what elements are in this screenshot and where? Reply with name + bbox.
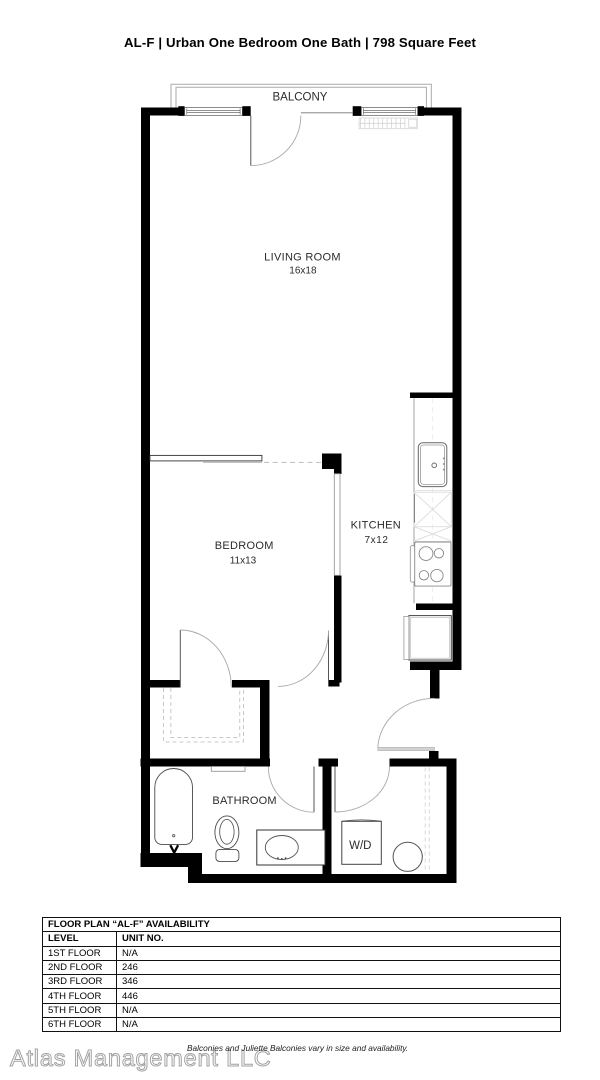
svg-text:KITCHEN: KITCHEN — [351, 520, 401, 532]
svg-text:11x13: 11x13 — [230, 555, 257, 566]
svg-text:7x12: 7x12 — [364, 535, 388, 546]
svg-text:BALCONY: BALCONY — [273, 91, 328, 103]
svg-text:BATHROOM: BATHROOM — [212, 795, 276, 807]
svg-text:LIVING ROOM: LIVING ROOM — [264, 252, 341, 264]
svg-text:16x18: 16x18 — [289, 266, 317, 277]
svg-text:W/D: W/D — [349, 840, 371, 852]
svg-text:BEDROOM: BEDROOM — [215, 540, 274, 552]
